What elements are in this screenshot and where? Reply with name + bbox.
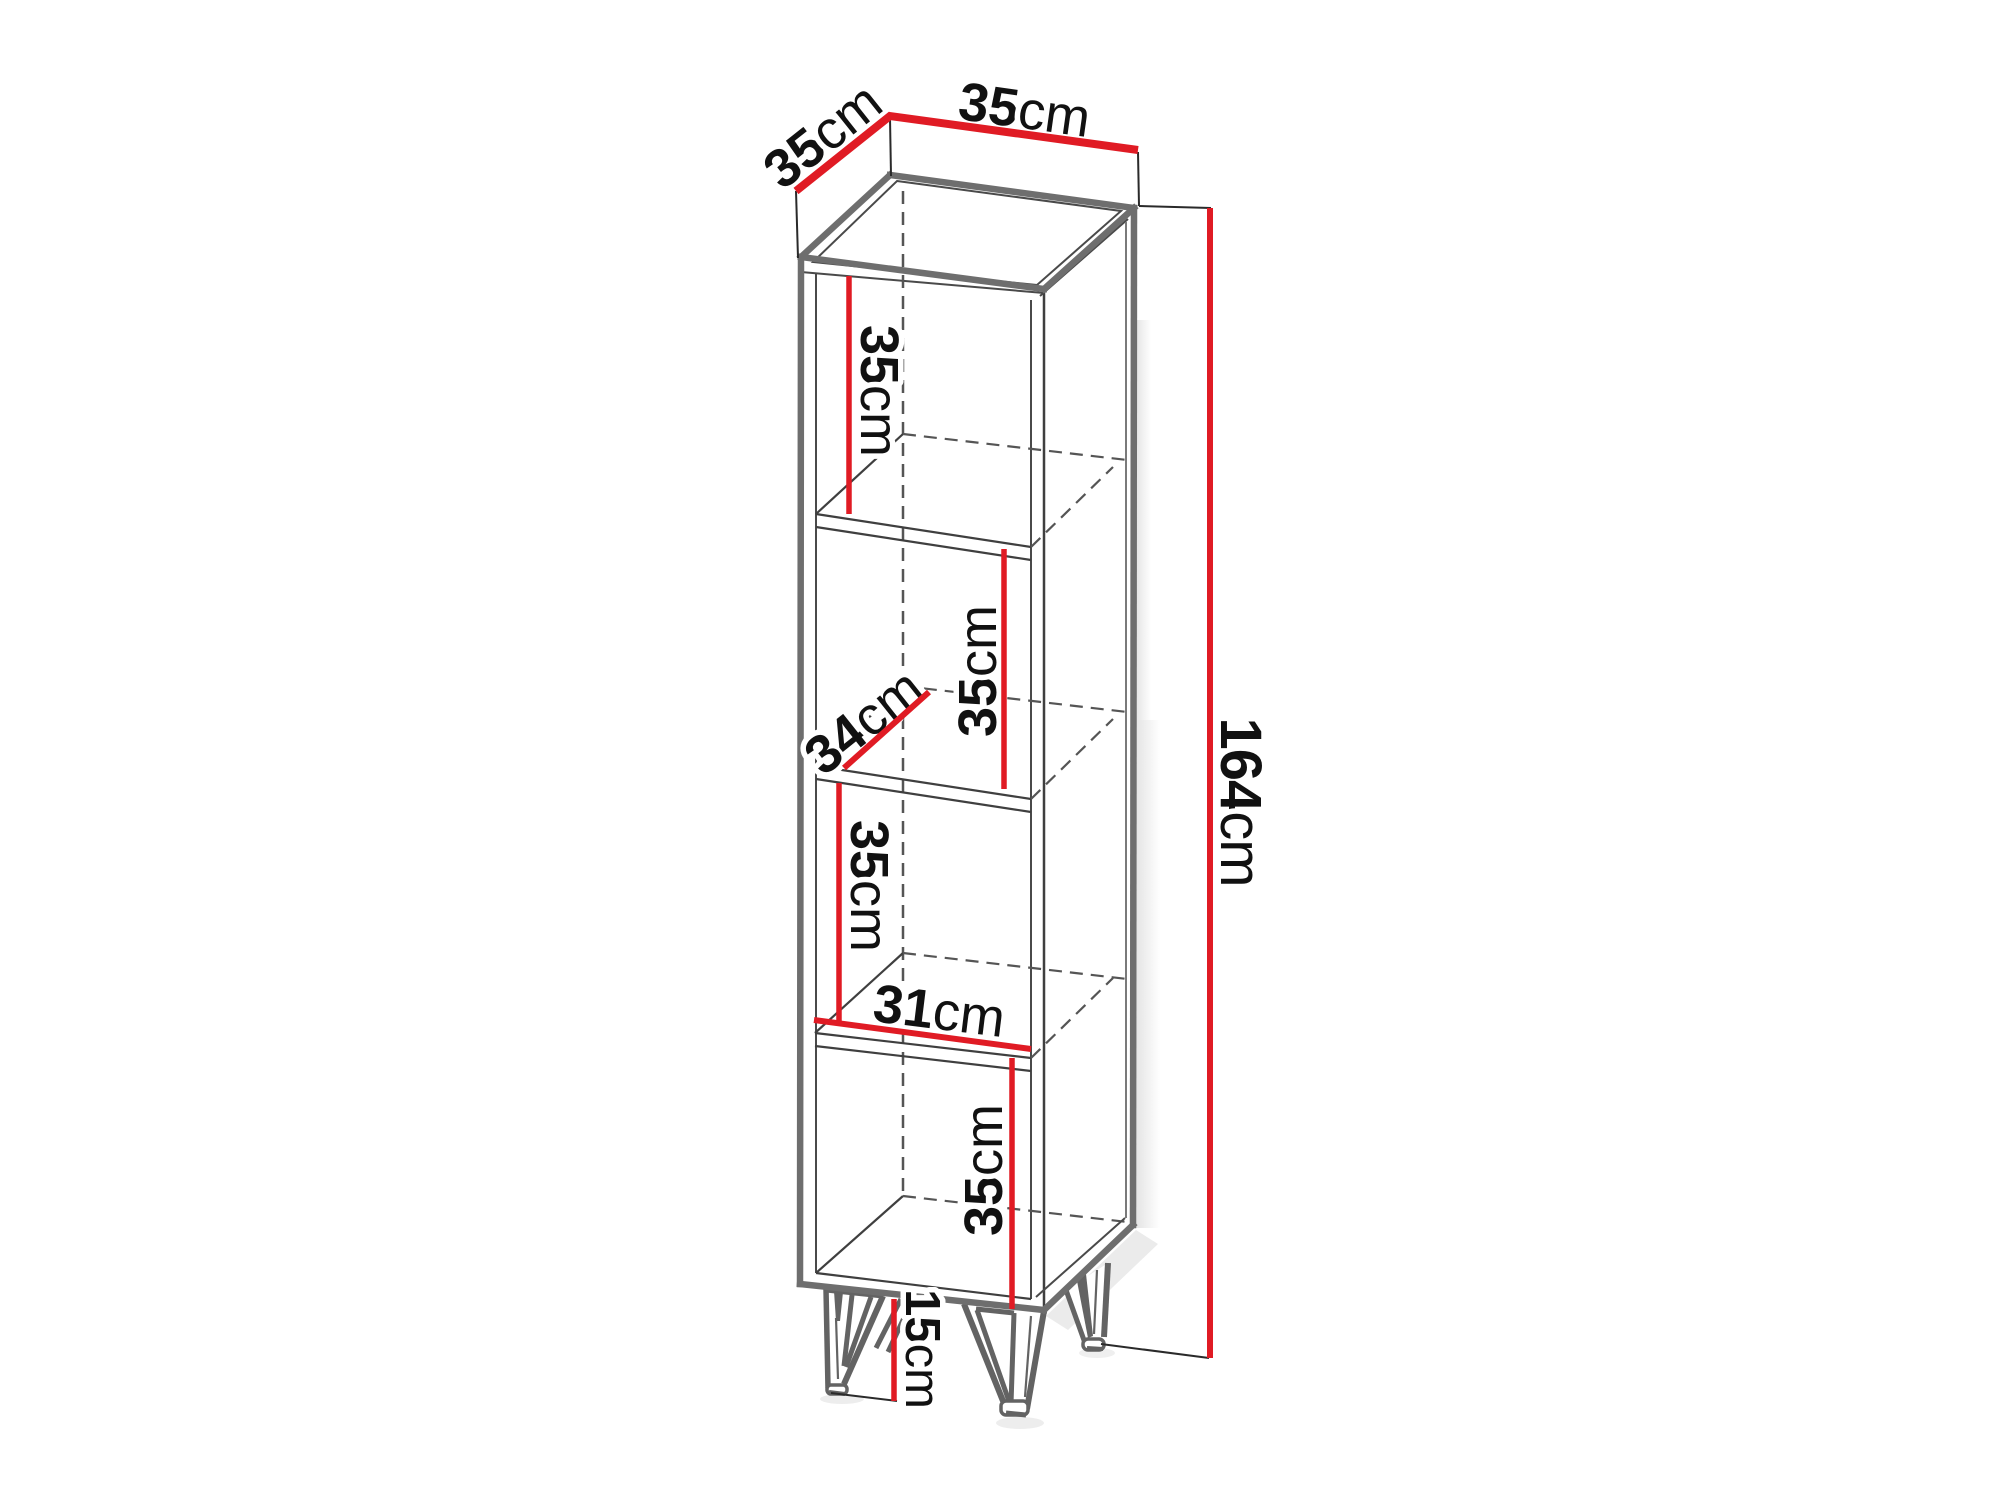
- svg-text:35cm: 35cm: [948, 605, 1008, 737]
- svg-text:35cm: 35cm: [849, 325, 909, 457]
- svg-text:15cm: 15cm: [895, 1289, 949, 1409]
- svg-text:35cm: 35cm: [954, 1104, 1014, 1236]
- svg-text:35cm: 35cm: [839, 820, 899, 952]
- svg-text:164cm: 164cm: [1208, 717, 1273, 886]
